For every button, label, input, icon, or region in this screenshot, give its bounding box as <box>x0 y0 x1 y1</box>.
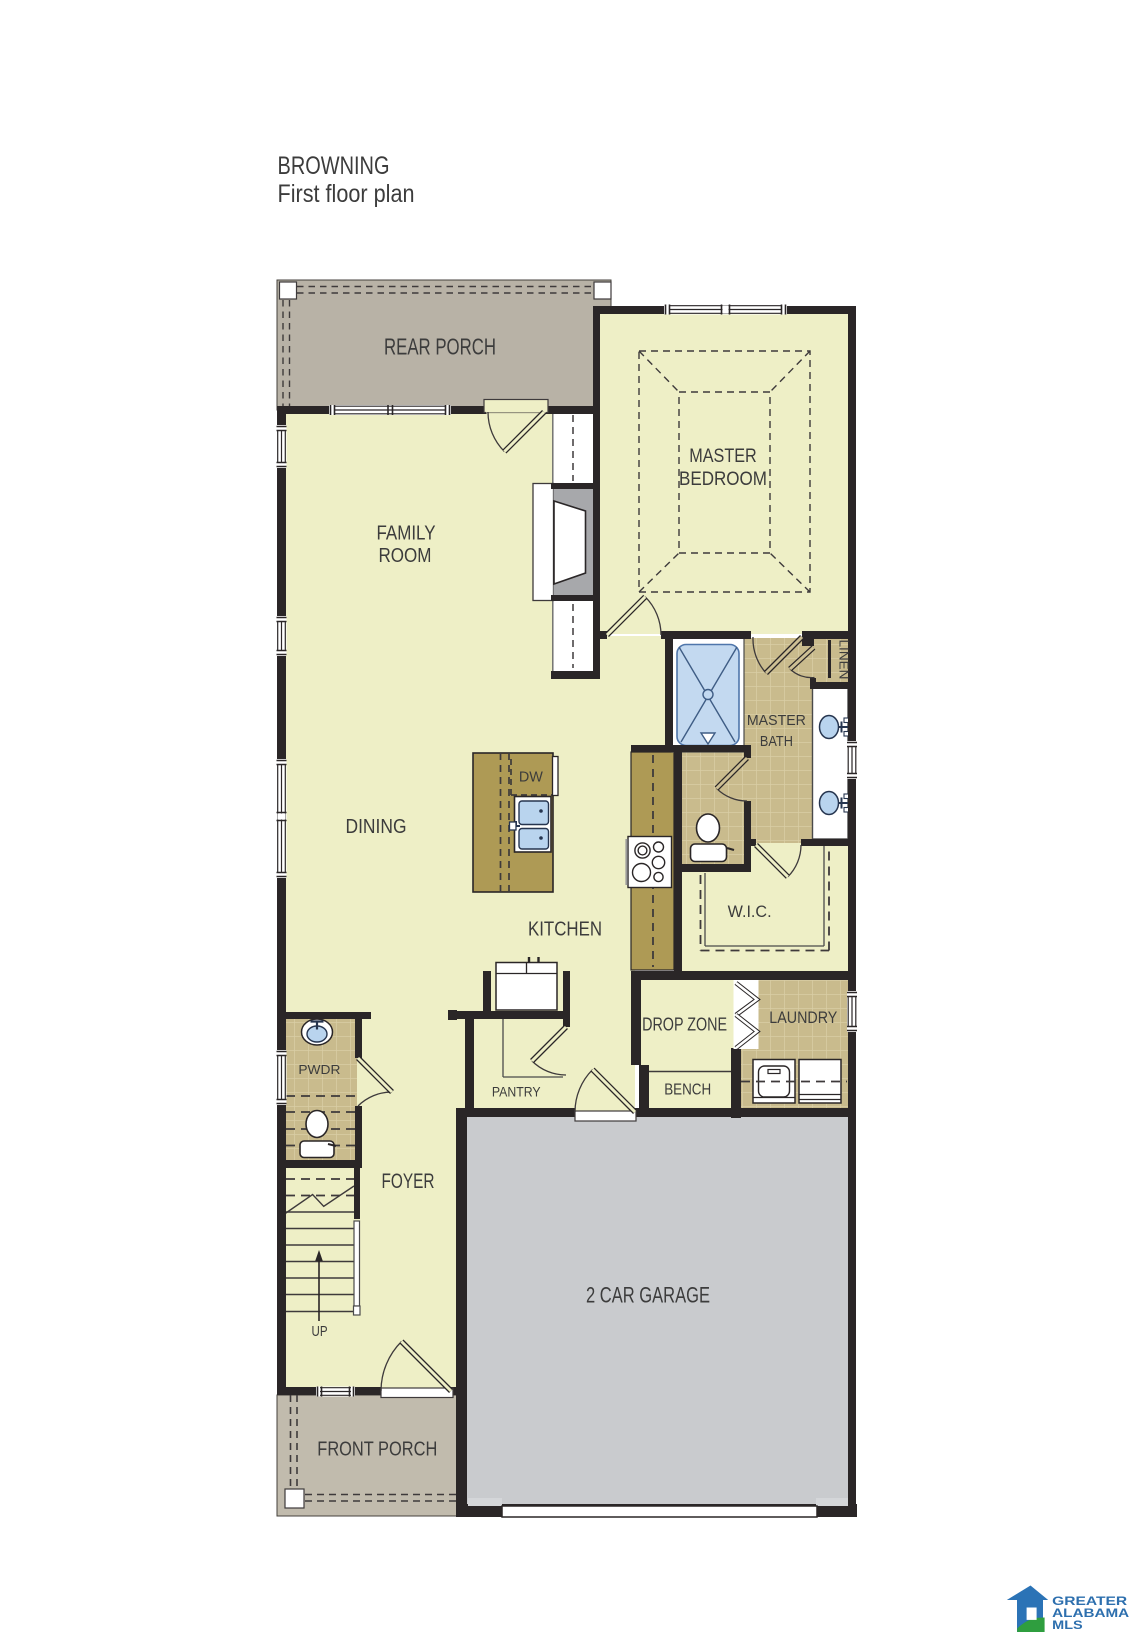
svg-text:FOYER: FOYER <box>382 1170 435 1193</box>
svg-text:BEDROOM: BEDROOM <box>679 469 767 490</box>
svg-text:DROP ZONE: DROP ZONE <box>642 1014 727 1034</box>
svg-text:LAUNDRY: LAUNDRY <box>769 1008 837 1027</box>
svg-text:REAR PORCH: REAR PORCH <box>384 334 496 360</box>
svg-text:DW: DW <box>519 769 544 786</box>
svg-text:KITCHEN: KITCHEN <box>528 917 602 940</box>
svg-text:FAMILY: FAMILY <box>377 521 436 544</box>
svg-text:UP: UP <box>312 1323 328 1340</box>
svg-text:First floor plan: First floor plan <box>278 180 415 208</box>
svg-text:MLS: MLS <box>1052 1618 1083 1632</box>
svg-text:W.I.C.: W.I.C. <box>728 902 772 921</box>
svg-text:PANTRY: PANTRY <box>492 1083 541 1099</box>
svg-text:DINING: DINING <box>346 815 407 838</box>
svg-text:BATH: BATH <box>760 734 793 750</box>
svg-text:BROWNING: BROWNING <box>278 152 390 180</box>
svg-text:BENCH: BENCH <box>664 1082 711 1099</box>
svg-text:PWDR: PWDR <box>298 1063 340 1077</box>
svg-text:FRONT PORCH: FRONT PORCH <box>317 1438 437 1460</box>
svg-text:LINEN: LINEN <box>837 640 851 680</box>
svg-text:2 CAR GARAGE: 2 CAR GARAGE <box>586 1283 710 1308</box>
svg-text:MASTER: MASTER <box>747 713 806 729</box>
svg-text:MASTER: MASTER <box>689 446 757 467</box>
svg-text:ROOM: ROOM <box>379 544 432 567</box>
